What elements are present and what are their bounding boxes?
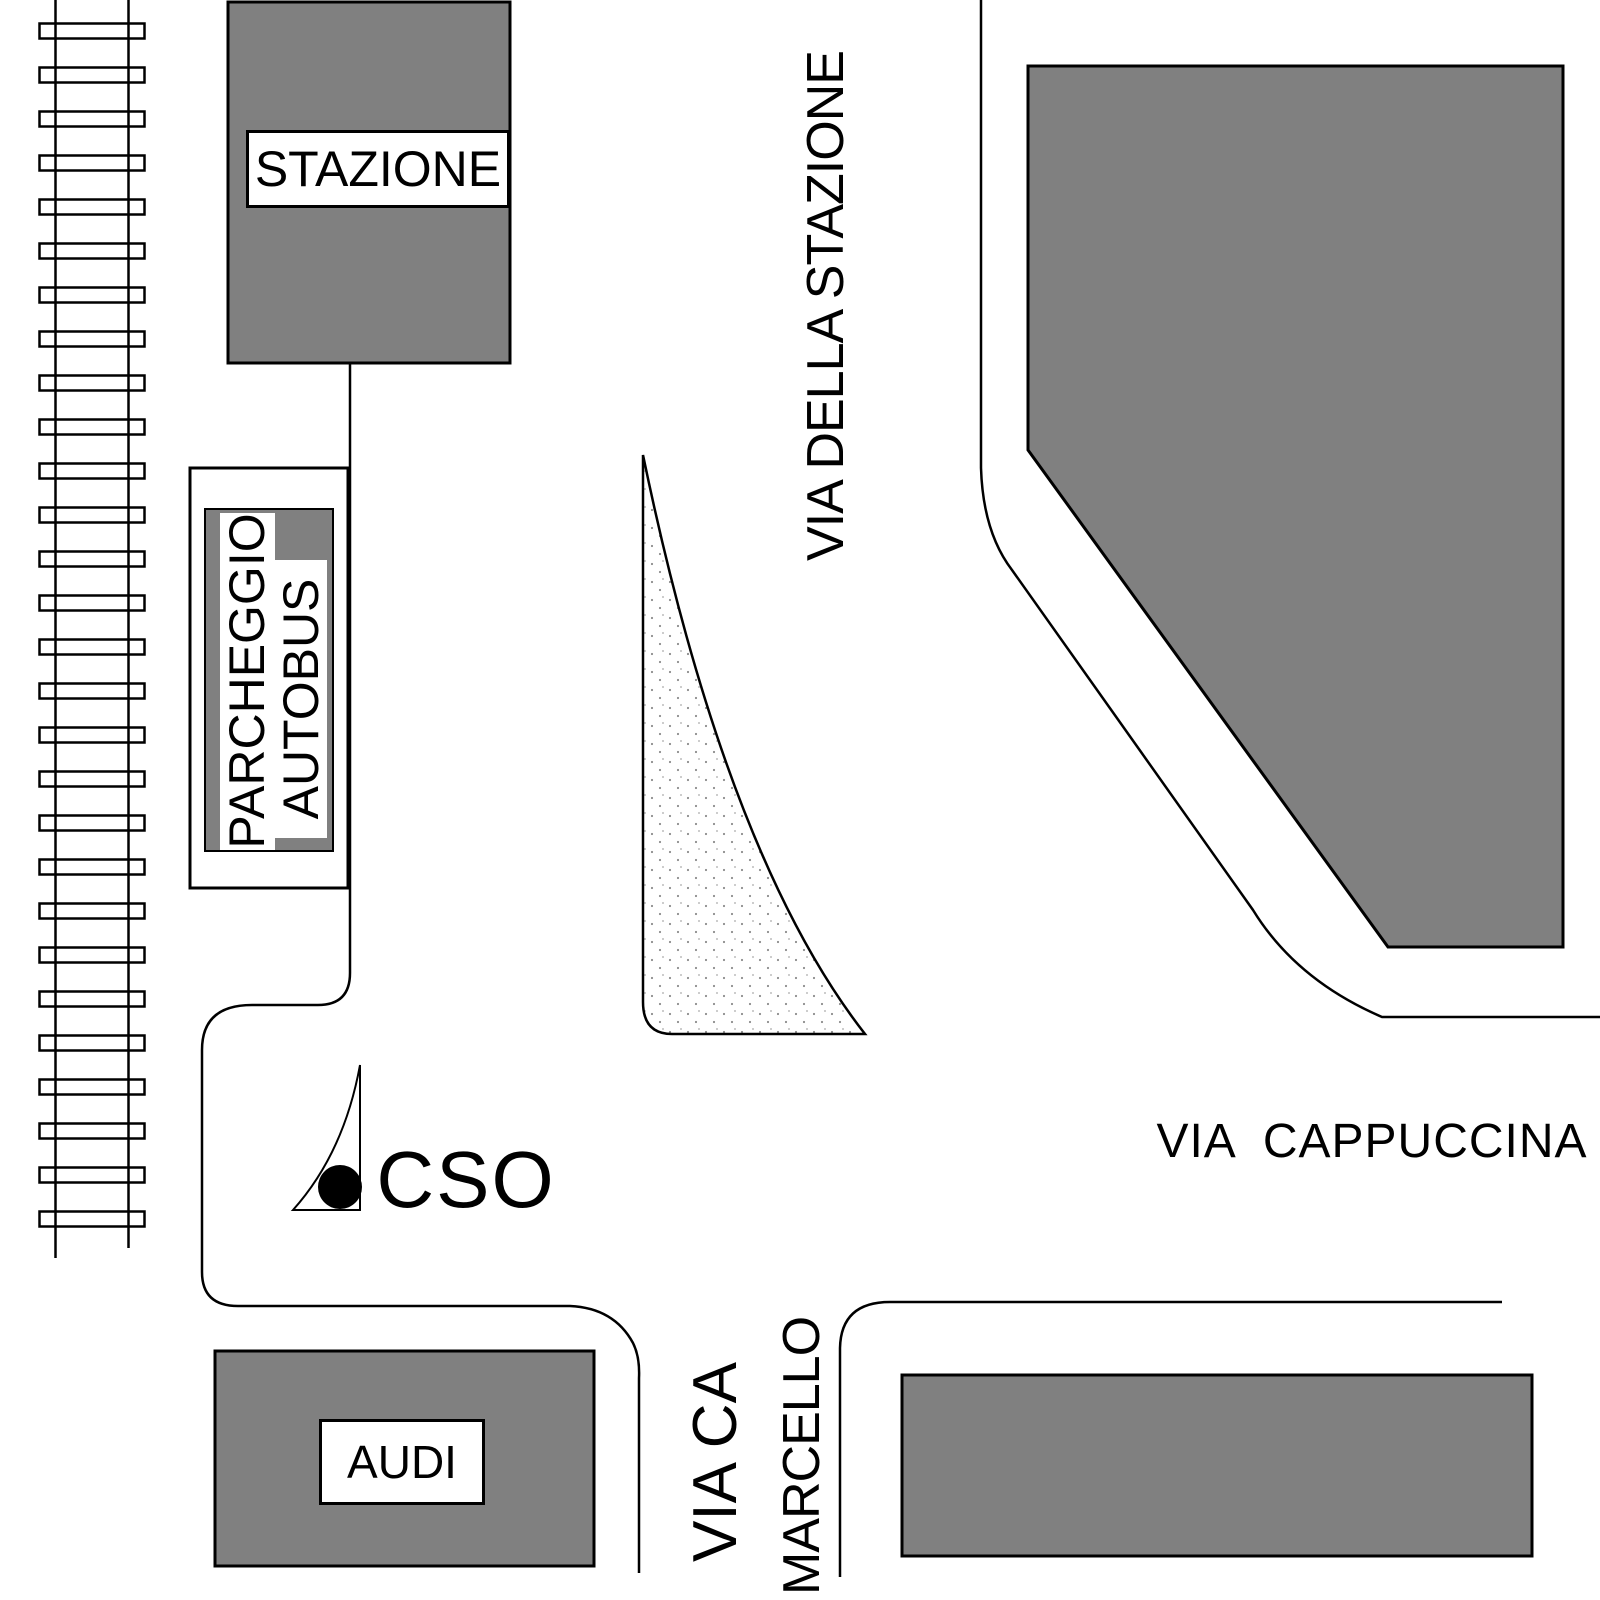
parking-label-autobus: AUTOBUS [276, 579, 326, 820]
parking-label-parcheggio: PARCHEGGIO [222, 513, 272, 848]
city-block-southeast [902, 1375, 1532, 1556]
audi-label: AUDI [347, 1435, 457, 1489]
audi-label-box: AUDI [319, 1419, 485, 1505]
street-label-via-ca: VIA CA [685, 1362, 747, 1562]
street-label-marcello: MARCELLO [776, 1317, 828, 1595]
railway-track-icon [38, 0, 146, 1258]
city-block-northeast [1028, 66, 1563, 947]
street-label-via-della-stazione: VIA DELLA STAZIONE [800, 51, 852, 561]
cso-marker-dot-icon [318, 1165, 362, 1209]
station-label: STAZIONE [255, 140, 501, 198]
street-label-via-cappuccina: VIA CAPPUCCINA [1156, 1118, 1587, 1166]
street-map: STAZIONE AUDI PARCHEGGIO AUTOBUS VIA DEL… [0, 0, 1600, 1600]
cso-label: CSO [376, 1140, 555, 1220]
station-label-box: STAZIONE [246, 130, 510, 208]
railway-sleepers [38, 22, 146, 1240]
